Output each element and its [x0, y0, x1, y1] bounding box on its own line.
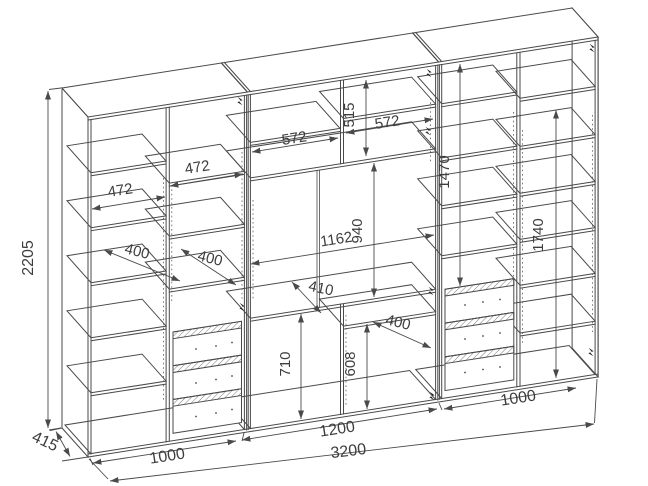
dim-right-col1-height: 1470 — [436, 155, 453, 188]
technical-drawing-page: 2205 415 1000 1200 1000 3200 472 472 400… — [0, 0, 648, 486]
dim-overall-depth: 415 — [29, 429, 60, 456]
dim-mid-cubby-left-width: 572 — [281, 128, 308, 149]
dim-overall-height: 2205 — [20, 240, 37, 276]
dim-mid-lower-right-height: 608 — [342, 351, 359, 376]
shelves — [67, 60, 595, 396]
dim-niche-shelf-depth: 410 — [307, 278, 335, 300]
dim-mid-lower-left-height: 710 — [277, 351, 294, 376]
dim-section-left-width: 1000 — [148, 445, 186, 467]
left-cabinet-top — [62, 63, 247, 117]
dim-left-col2-width: 472 — [184, 157, 211, 178]
dim-mid-cubby-right-width: 572 — [374, 112, 401, 133]
middle-cabinet-top — [221, 33, 438, 92]
dim-left-col1-width: 472 — [107, 180, 134, 201]
dim-mid-cubby-height: 515 — [341, 102, 358, 127]
dim-mid-lower-shelf-depth: 400 — [384, 311, 412, 334]
dim-section-middle-width: 1200 — [318, 418, 356, 440]
wall-unit-dimension-drawing: 2205 415 1000 1200 1000 3200 472 472 400… — [0, 0, 648, 486]
dim-overall-width: 3200 — [330, 441, 368, 462]
dim-right-col2-height: 1740 — [530, 218, 547, 251]
dimension-lines — [48, 64, 597, 481]
dim-section-right-width: 1000 — [499, 387, 537, 409]
dim-niche-height: 940 — [349, 218, 366, 243]
right-cabinet-top — [413, 8, 598, 62]
